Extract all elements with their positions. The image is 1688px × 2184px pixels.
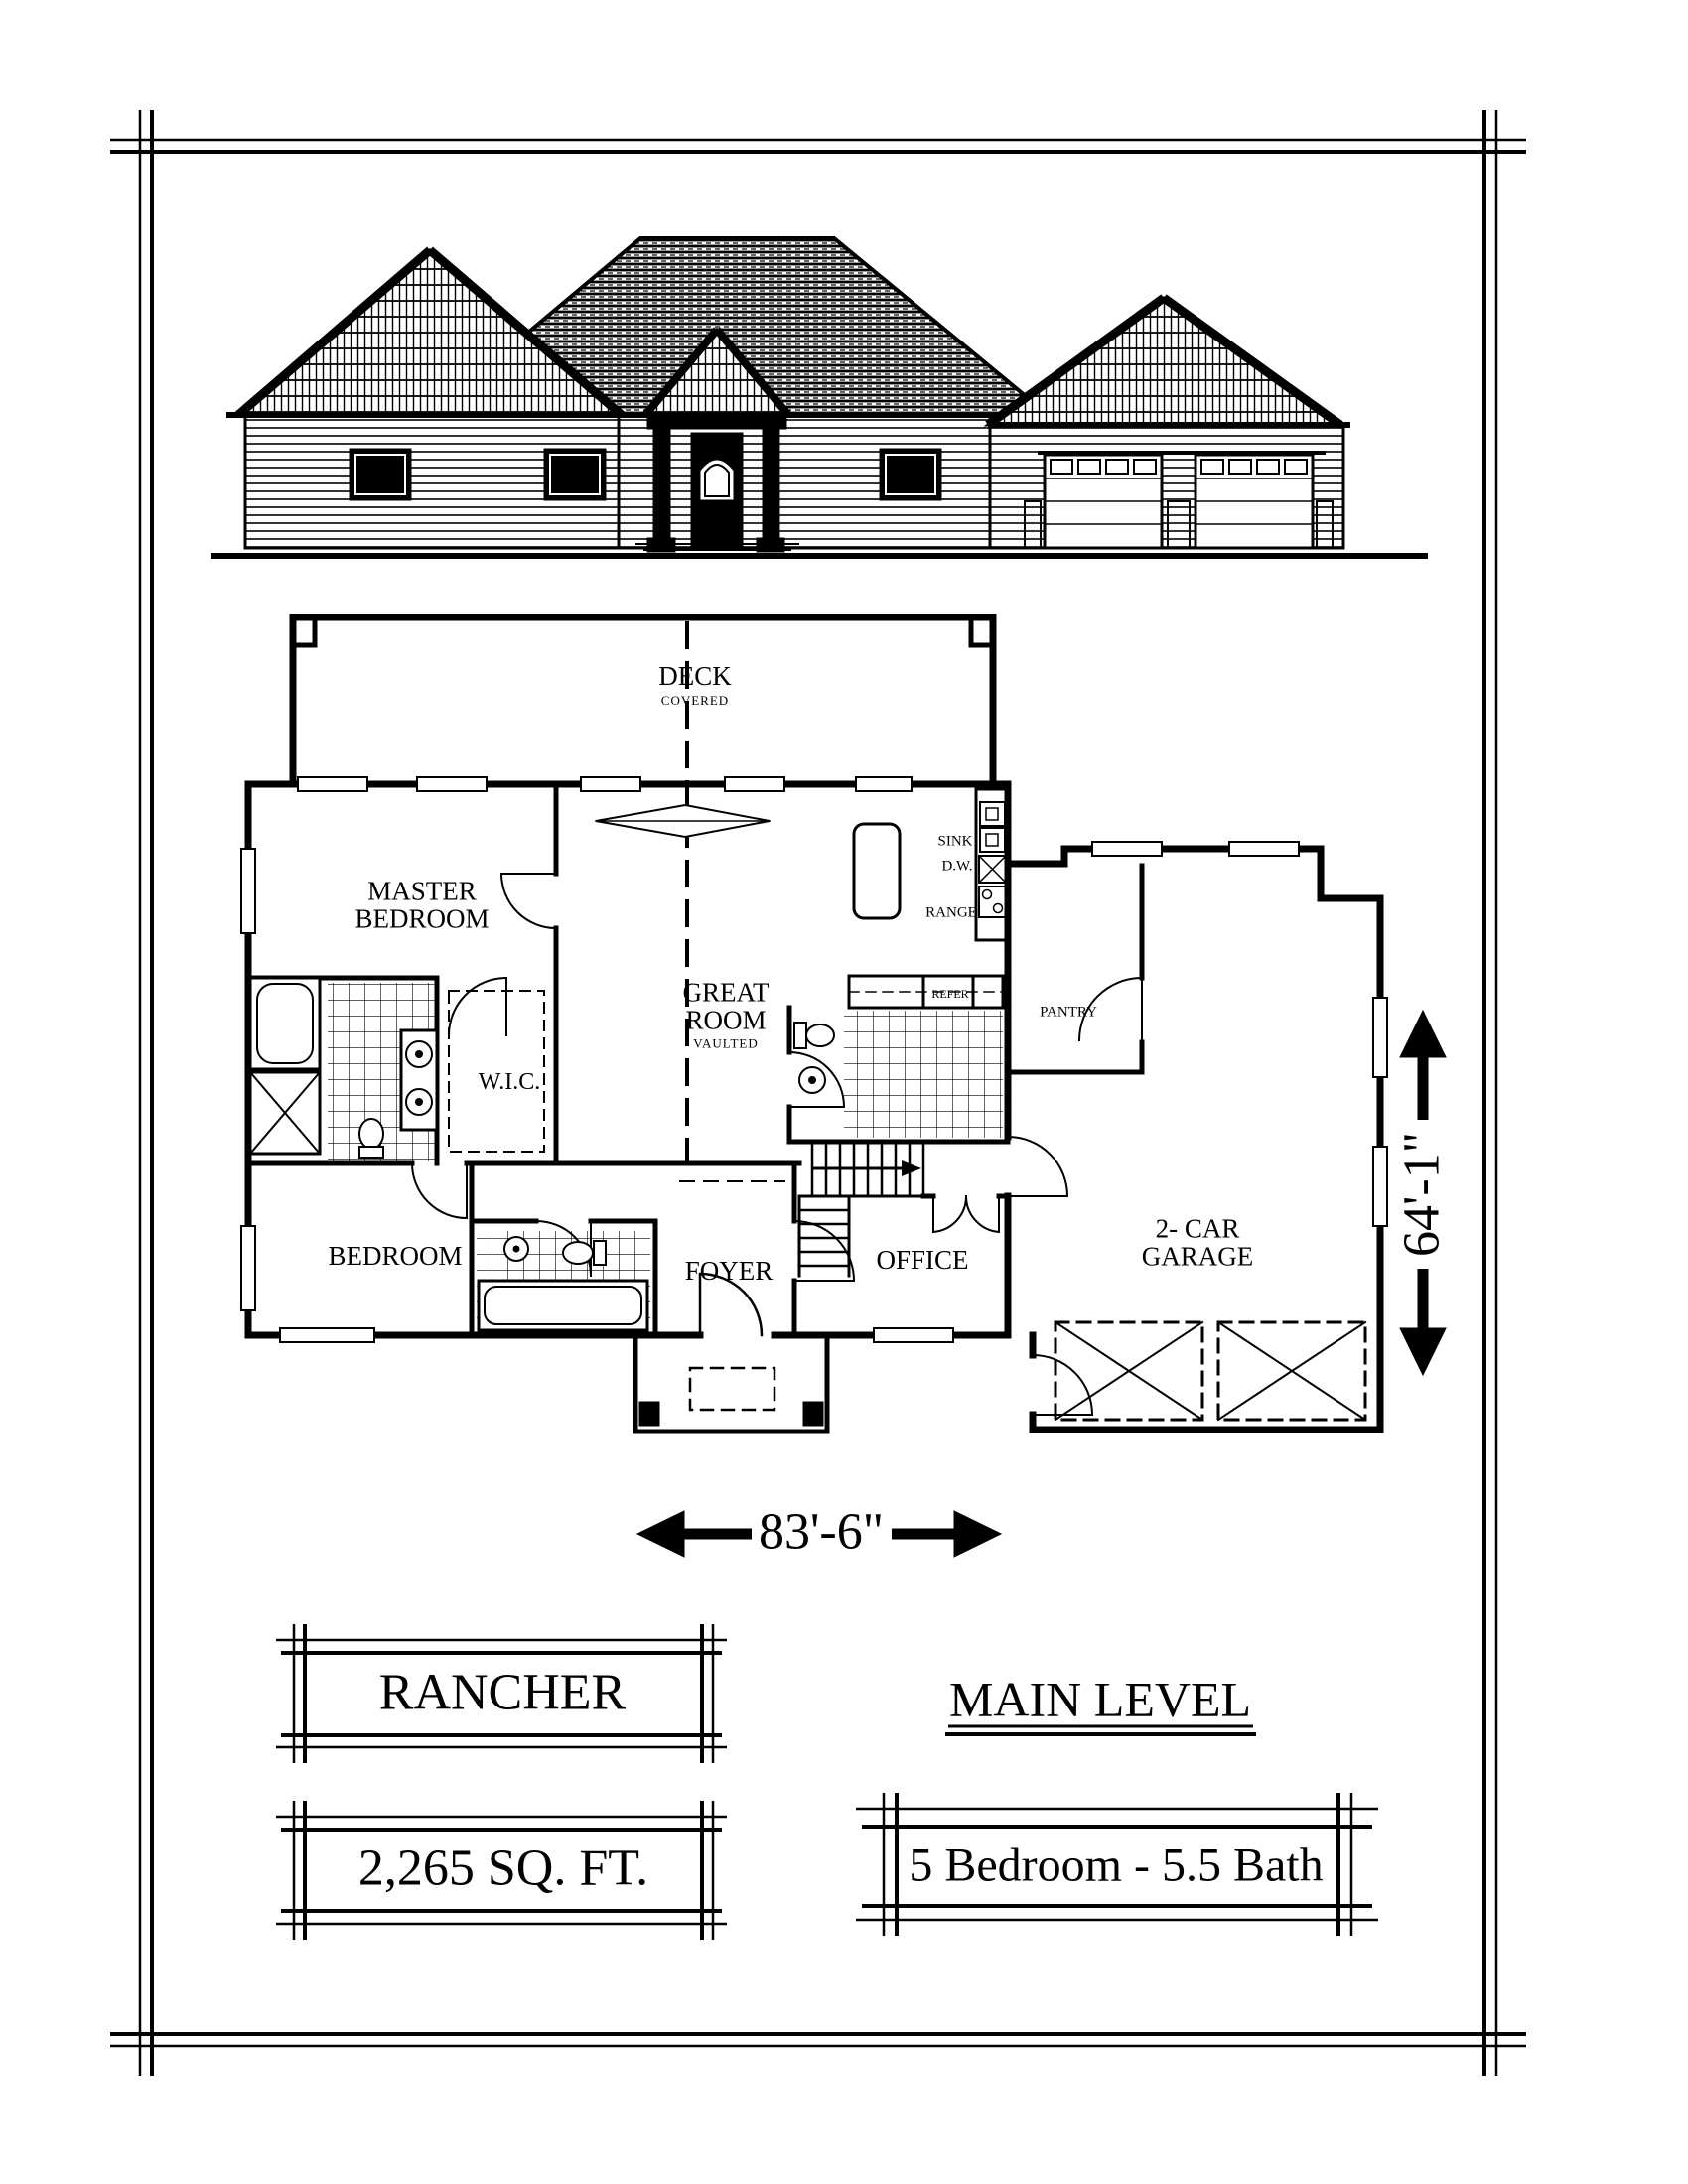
sink-label: SINK <box>937 834 972 849</box>
area-title: 2,265 SQ. FT. <box>358 1842 648 1894</box>
plan-sheet-drawing <box>0 0 1688 2184</box>
floor-plan <box>241 617 1387 1432</box>
foyer-label: FOYER <box>685 1258 774 1286</box>
width-dimension-label: 83'-6" <box>759 1505 884 1558</box>
elevation-drawing <box>211 238 1428 556</box>
garage-label: 2- CAR GARAGE <box>1142 1215 1254 1270</box>
depth-dimension-label: 64'-1" <box>1395 1132 1448 1257</box>
config-title: 5 Bedroom - 5.5 Bath <box>909 1843 1323 1891</box>
main-level-underline <box>945 1726 1256 1734</box>
half-bath-tile-floor <box>844 1011 1003 1138</box>
pantry-label: PANTRY <box>1040 1005 1097 1020</box>
deck-sub: COVERED <box>658 694 732 707</box>
great-room-label: GREAT ROOM VAULTED <box>683 979 770 1049</box>
great-sub: VAULTED <box>683 1036 770 1049</box>
master-line1: MASTER <box>354 878 489 905</box>
front-porch <box>635 1335 827 1432</box>
toilet <box>806 1024 834 1046</box>
tub <box>250 978 320 1069</box>
great-line2: ROOM <box>683 1007 770 1034</box>
kitchen-island <box>854 824 900 918</box>
deck-name: DECK <box>658 663 732 691</box>
tub <box>479 1281 647 1330</box>
dishwasher-label: D.W. <box>941 859 972 874</box>
great-line1: GREAT <box>683 979 770 1007</box>
wic-label: W.I.C. <box>479 1070 540 1094</box>
kitchen <box>849 789 1008 1008</box>
porch-dashed <box>690 1368 774 1410</box>
garage-line1: 2- CAR <box>1142 1215 1254 1243</box>
office-label: OFFICE <box>876 1247 968 1275</box>
level-title: MAIN LEVEL <box>949 1675 1251 1725</box>
stair-direction-arrow <box>902 1160 921 1176</box>
range-label: RANGE <box>925 905 977 920</box>
garage-line2: GARAGE <box>1142 1243 1254 1271</box>
master-line2: BEDROOM <box>354 905 489 933</box>
toilet <box>359 1119 383 1149</box>
bedroom-label: BEDROOM <box>328 1243 462 1271</box>
toilet <box>563 1242 593 1264</box>
plan-name-title: RANCHER <box>379 1666 626 1718</box>
ceiling-beam-ornament <box>596 805 770 837</box>
refrigerator-label: REFER <box>931 988 968 1000</box>
master-bedroom-label: MASTER BEDROOM <box>354 878 489 932</box>
garage-doors <box>1055 1322 1365 1420</box>
deck-label: DECK COVERED <box>658 663 732 707</box>
